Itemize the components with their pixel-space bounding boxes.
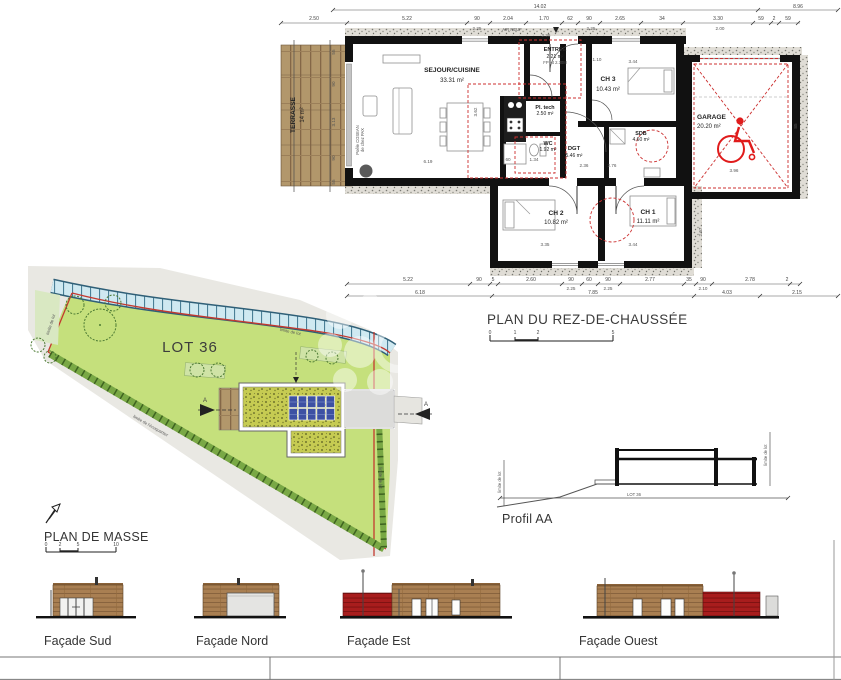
dim: 2.36 bbox=[580, 163, 589, 168]
window bbox=[452, 600, 460, 615]
room-sdb-area: 4.60 m² bbox=[633, 137, 650, 143]
wc-toilet bbox=[530, 144, 539, 156]
profile-lot-dim: LOT 36 bbox=[627, 492, 642, 497]
window bbox=[412, 599, 421, 616]
pillow bbox=[664, 70, 672, 92]
hatch-band bbox=[345, 186, 493, 194]
profile-aa: limite de lot limite de lot LOT 36 Profi… bbox=[497, 432, 790, 526]
chair bbox=[484, 122, 490, 132]
limit-label: limite de lot bbox=[378, 467, 383, 489]
furniture bbox=[360, 55, 677, 230]
dim: 7.85 bbox=[588, 290, 598, 296]
window bbox=[633, 599, 642, 616]
dim: 90 bbox=[700, 277, 706, 283]
window bbox=[675, 599, 684, 616]
dim: 60 bbox=[586, 277, 592, 283]
room-sejour-area: 33.31 m² bbox=[440, 78, 464, 84]
stove-note-2: de chez PAX bbox=[360, 128, 365, 152]
hatch-band bbox=[490, 268, 694, 276]
site-plan: A A limite de lot limite de l'écoquartie… bbox=[28, 266, 435, 560]
dim: 1.10 bbox=[593, 57, 602, 62]
facades: Façade Sud Façade Nord Façade Est bbox=[36, 569, 779, 648]
dim: 85 bbox=[793, 123, 798, 129]
armchair bbox=[363, 96, 377, 116]
scale-label: 5 bbox=[612, 330, 615, 336]
dim: 14.02 bbox=[534, 4, 547, 10]
dim: 6.18 bbox=[415, 290, 425, 296]
green-roof bbox=[291, 431, 341, 453]
dim: 62 bbox=[567, 16, 573, 22]
hatch-band bbox=[800, 55, 808, 199]
room-sejour: SEJOUR/CUISINE bbox=[424, 67, 480, 74]
north-arrow-icon bbox=[46, 504, 60, 523]
dim: 90 bbox=[476, 277, 482, 283]
dim: 2.00 bbox=[716, 26, 725, 31]
annex bbox=[766, 596, 778, 616]
facade-nord: Façade Nord bbox=[194, 578, 286, 648]
room-ch3-area: 10.43 m² bbox=[596, 87, 620, 93]
dim: 2.25 bbox=[604, 286, 613, 291]
room-ch2-area: 10.82 m² bbox=[544, 220, 568, 226]
chimney bbox=[471, 579, 474, 586]
room-wc-area: 1.92 m² bbox=[540, 147, 557, 153]
dim: 3.44 bbox=[629, 242, 638, 247]
scale-label: 0 bbox=[45, 542, 48, 548]
floor-plan: TERRASSE 14 m² bbox=[279, 4, 840, 341]
dim: 4.03 bbox=[722, 290, 732, 296]
ground-line bbox=[583, 616, 779, 619]
dim: 3.30 bbox=[713, 16, 723, 22]
terrace: TERRASSE 14 m² bbox=[281, 40, 352, 192]
room-ch2: CH 2 bbox=[548, 210, 563, 217]
dim: 59 bbox=[758, 16, 764, 22]
dim: 2.50 bbox=[309, 16, 319, 22]
dim: 55 bbox=[331, 179, 336, 185]
profile-building bbox=[617, 448, 757, 486]
terrace-area: 14 m² bbox=[300, 107, 306, 122]
hatch-band bbox=[684, 47, 802, 55]
pillow bbox=[505, 202, 514, 228]
sliding-bay-window bbox=[347, 64, 352, 166]
dim: 2.76 bbox=[608, 163, 617, 168]
room-ch1-area: 11.11 m² bbox=[637, 219, 660, 225]
dim: 2.25 bbox=[567, 286, 576, 291]
room-ch3: CH 3 bbox=[600, 76, 615, 83]
lot-number-label: LOT 36 bbox=[162, 339, 218, 356]
dim: 3.62 bbox=[473, 107, 478, 116]
profile-limit-label: limite de lot bbox=[763, 444, 768, 466]
driveway bbox=[394, 396, 422, 424]
dim: 3.44 bbox=[629, 59, 638, 64]
bathroom-sink bbox=[644, 168, 660, 177]
tv-unit bbox=[383, 55, 420, 63]
profile-limit-label: limite de lot bbox=[497, 471, 502, 493]
room-garage: GARAGE bbox=[697, 114, 727, 121]
scale-label: 1 bbox=[514, 330, 517, 336]
wood-stove bbox=[360, 165, 373, 178]
profile-title: Profil AA bbox=[502, 512, 553, 526]
dim: 8.96 bbox=[793, 4, 803, 10]
dim: 2.67 bbox=[698, 227, 703, 236]
dim: 34 bbox=[659, 16, 665, 22]
chair bbox=[484, 136, 490, 146]
wheelchair-icon bbox=[718, 117, 755, 162]
room-garage-area: 20.20 m² bbox=[697, 124, 721, 130]
room-entree-note: FP Ht 2.30M bbox=[543, 60, 567, 65]
facade-est: Façade Est bbox=[340, 569, 512, 648]
dim: 60 bbox=[505, 157, 511, 162]
room-entree: ENTREE bbox=[544, 47, 567, 53]
red-garage-wall bbox=[343, 593, 392, 616]
floor-plan-title: PLAN DU REZ-DE-CHAUSSÉE bbox=[487, 312, 687, 327]
scale-label: 0 bbox=[489, 330, 492, 336]
room-dgt-area: 5.46 m² bbox=[566, 153, 583, 159]
scale-label: 2 bbox=[537, 330, 540, 336]
pillow bbox=[667, 198, 675, 224]
dim: 3.13 bbox=[331, 117, 336, 126]
facade-sud-label: Façade Sud bbox=[44, 634, 111, 648]
dim: 2.78 bbox=[745, 277, 755, 283]
dim: 5.22 bbox=[402, 16, 412, 22]
drawing-svg: TERRASSE 14 m² bbox=[0, 0, 841, 680]
dim: 5.22 bbox=[403, 277, 413, 283]
red-garage-wall bbox=[703, 592, 760, 616]
floor-plan-scale-bar: 0 1 2 5 bbox=[489, 330, 615, 341]
dim: 90 bbox=[474, 16, 480, 22]
dim: 2.25 bbox=[542, 33, 551, 38]
dim: 35 bbox=[686, 277, 692, 283]
dim: 55 bbox=[331, 49, 336, 55]
dim: 2.10 bbox=[699, 286, 708, 291]
dim: 2 bbox=[786, 277, 789, 283]
dim: 2.77 bbox=[645, 277, 655, 283]
dim: 3.35 bbox=[541, 242, 550, 247]
dim: 1.34 bbox=[530, 157, 539, 162]
terrace-label: TERRASSE bbox=[290, 96, 297, 133]
scale-label: 5 bbox=[77, 542, 80, 548]
section-marker-a: A bbox=[203, 398, 207, 404]
architectural-drawing-sheet: TERRASSE 14 m² bbox=[0, 0, 841, 680]
dim: 90 bbox=[605, 277, 611, 283]
dim: 2.25 bbox=[473, 26, 482, 31]
scale-label: 10 bbox=[113, 542, 119, 548]
dim: 5 bbox=[492, 277, 495, 283]
chair bbox=[440, 136, 446, 146]
dim: 2.65 bbox=[615, 16, 625, 22]
walls bbox=[345, 36, 800, 268]
chair bbox=[484, 108, 490, 118]
dim: 90 bbox=[586, 16, 592, 22]
ground-line bbox=[194, 616, 286, 618]
window bbox=[661, 599, 671, 616]
chair bbox=[440, 108, 446, 118]
facade-est-label: Façade Est bbox=[347, 634, 411, 648]
facade-ouest-label: Façade Ouest bbox=[579, 634, 658, 648]
dim: 2 bbox=[773, 16, 776, 22]
dim: 90 bbox=[568, 277, 574, 283]
dim: 3.96 bbox=[730, 168, 739, 173]
air-neuf-label: AIR NEUF bbox=[502, 27, 522, 32]
ground-line bbox=[36, 616, 136, 618]
garage-roof bbox=[345, 390, 394, 428]
dim: 90 bbox=[331, 155, 336, 161]
room-ch1: CH 1 bbox=[640, 209, 655, 216]
room-dgt: DGT bbox=[568, 146, 581, 152]
section-marker-a: A bbox=[424, 402, 428, 408]
footprint-terrace bbox=[219, 388, 239, 430]
dim: 2.04 bbox=[503, 16, 513, 22]
chimney bbox=[95, 577, 98, 585]
dim: 59 bbox=[785, 16, 791, 22]
chair bbox=[440, 122, 446, 132]
room-pltech-area: 2.50 m² bbox=[537, 111, 554, 117]
dim: 2.25 bbox=[587, 26, 596, 31]
dim: 2.15 bbox=[792, 290, 802, 296]
dim: 2.60 bbox=[526, 277, 536, 283]
chimney bbox=[237, 578, 240, 585]
dim: 1.70 bbox=[539, 16, 549, 22]
sofa bbox=[393, 88, 412, 134]
garage-door bbox=[227, 593, 274, 616]
dim: 6.19 bbox=[424, 159, 433, 164]
facade-ouest: Façade Ouest bbox=[579, 571, 779, 648]
facade-sud: Façade Sud bbox=[36, 577, 136, 648]
ground-line bbox=[340, 616, 512, 619]
scale-label: 2 bbox=[59, 542, 62, 548]
facade-nord-label: Façade Nord bbox=[196, 634, 268, 648]
profile-terrace bbox=[595, 480, 617, 484]
watermark bbox=[318, 294, 435, 395]
dim: 90 bbox=[331, 81, 336, 87]
